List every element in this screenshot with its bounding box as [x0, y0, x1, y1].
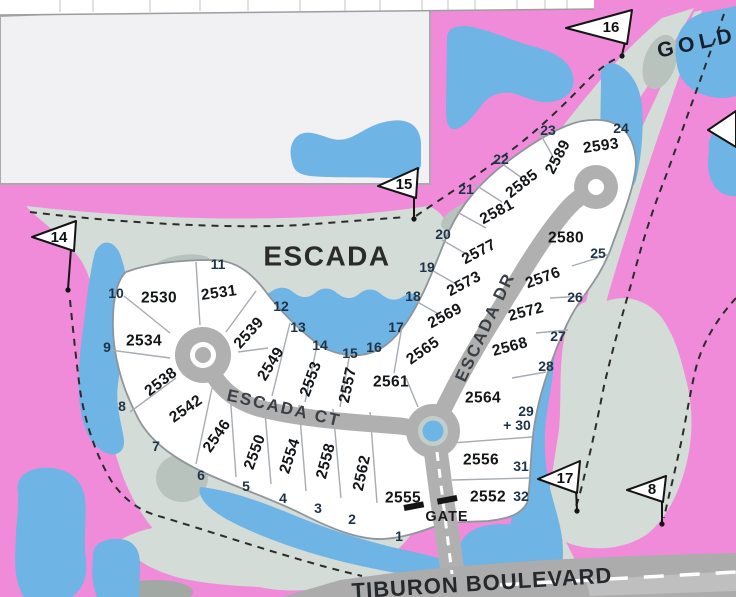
flag-number: 8 — [648, 481, 656, 498]
view-marker: 7 — [152, 438, 160, 454]
view-marker: 27 — [550, 328, 566, 344]
lot-label: 2534 — [126, 333, 162, 350]
gate-label: GATE — [425, 509, 468, 525]
view-marker: 11 — [211, 256, 226, 272]
view-marker: 6 — [197, 467, 205, 483]
view-marker: 17 — [388, 319, 404, 335]
view-marker: 22 — [493, 151, 509, 167]
escada-plat-map: 14 15 16 17 8 2530 2531 2534 2538 2539 — [0, 0, 736, 597]
view-marker: 4 — [279, 490, 287, 506]
pond — [15, 468, 86, 597]
flag-number: 17 — [557, 470, 574, 487]
view-marker: 28 — [538, 358, 554, 374]
lot-label: 2561 — [373, 374, 409, 391]
view-marker: 31 — [513, 458, 529, 474]
view-marker: 21 — [458, 181, 474, 197]
view-marker: 23 — [540, 122, 556, 138]
view-marker: + 30 — [503, 417, 531, 433]
flag-number: 16 — [603, 19, 620, 36]
plat-map-canvas: 14 15 16 17 8 2530 2531 2534 2538 2539 — [0, 0, 736, 597]
view-marker: 16 — [366, 339, 382, 355]
view-marker: 24 — [613, 120, 629, 136]
view-marker: 12 — [273, 298, 289, 314]
lot-label: 2580 — [548, 230, 584, 247]
lot-label: 2564 — [465, 390, 501, 407]
view-marker: 19 — [419, 259, 435, 275]
view-marker: 26 — [567, 289, 583, 305]
view-marker: 1 — [395, 528, 403, 544]
flag-number: 14 — [51, 229, 68, 246]
view-marker: 3 — [314, 500, 322, 516]
view-marker: 13 — [290, 319, 306, 335]
lot-label: 2555 — [385, 490, 421, 507]
view-marker: 10 — [108, 285, 124, 301]
community-title: ESCADA — [263, 241, 390, 272]
pond — [92, 539, 140, 597]
view-marker: 32 — [513, 488, 529, 504]
flag-number: 15 — [396, 176, 413, 193]
view-marker: 14 — [312, 337, 328, 353]
view-marker: 20 — [435, 226, 451, 242]
view-marker: 8 — [118, 398, 126, 414]
lot-label: 2530 — [141, 290, 177, 307]
view-marker: 9 — [103, 339, 111, 355]
view-marker: 25 — [590, 245, 606, 261]
view-marker: 15 — [342, 345, 358, 361]
lot-label: 2552 — [470, 489, 506, 506]
lot-label: 2556 — [463, 452, 499, 469]
view-marker: 18 — [405, 288, 421, 304]
view-marker: 5 — [242, 478, 250, 494]
view-marker: 2 — [348, 511, 356, 527]
